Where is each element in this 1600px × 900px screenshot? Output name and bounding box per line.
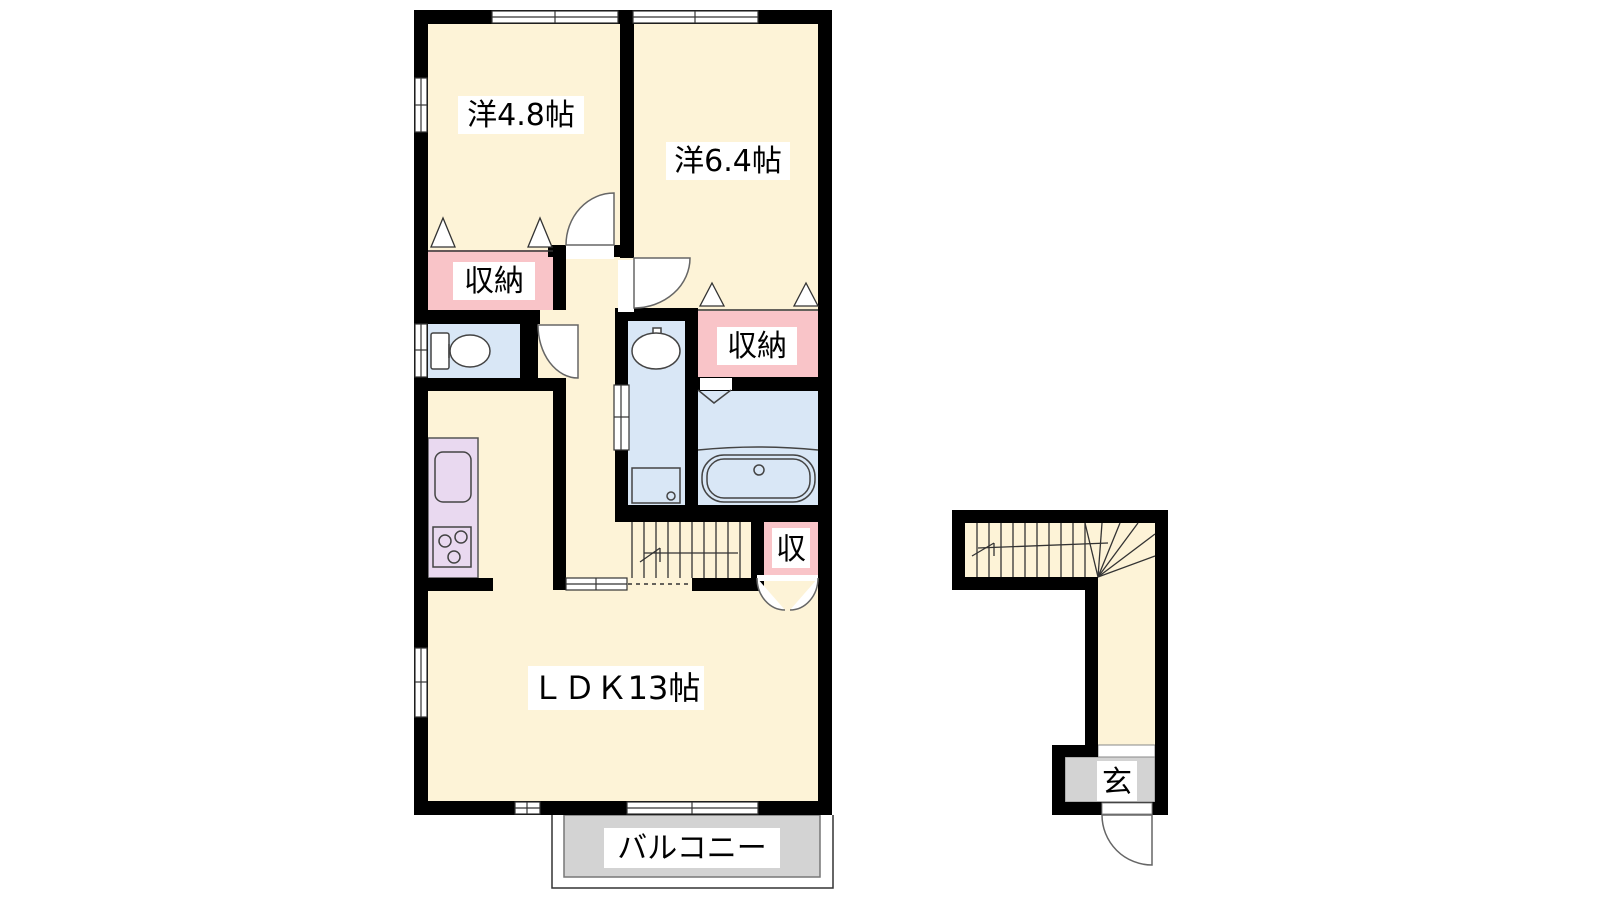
wall-stairs-right — [751, 522, 764, 578]
wall-between-rooms — [620, 24, 634, 258]
door-washroom-sliding — [614, 385, 629, 450]
entrance-threshold — [1098, 745, 1155, 757]
door-room64-gap — [618, 260, 634, 312]
entrance-label: 玄 — [1102, 765, 1132, 800]
corridor-floor — [1098, 577, 1155, 745]
wall-storageleft-right — [553, 245, 566, 310]
wall-below-toilet — [414, 378, 566, 391]
window-top-room48 — [492, 11, 618, 23]
toilet-icon — [431, 333, 490, 369]
wall-entrance-topfill — [1065, 745, 1098, 757]
room48-label: 洋4.8帖 — [467, 98, 575, 133]
balcony-label: バルコニー — [617, 831, 766, 866]
wall-top — [414, 10, 832, 24]
storage-small-label: 収 — [776, 532, 806, 567]
wall-structure-right — [1155, 510, 1168, 815]
wall-below-stairs — [692, 578, 764, 591]
wall-bottom — [414, 801, 832, 815]
wall-washroom-left-upper — [615, 321, 628, 385]
window-left-room48 — [415, 78, 427, 132]
window-left-toilet — [415, 324, 427, 377]
storage-left-label: 収納 — [464, 264, 524, 299]
wall-stairwell-top — [952, 510, 1168, 523]
room64-label: 洋6.4帖 — [674, 144, 782, 179]
wall-corridor-left — [1085, 577, 1098, 745]
window-top-room64 — [633, 11, 758, 23]
wall-above-toilet — [428, 310, 540, 324]
window-left-ldk — [415, 648, 427, 717]
wall-stairwell-bottom — [952, 577, 1098, 590]
floorplan-page: 洋4.8帖 洋6.4帖 収納 収納 収 ＬＤＫ13帖 バルコニー 玄 — [0, 0, 1600, 900]
wall-bath-bottom — [615, 505, 832, 522]
wall-toilet-right — [520, 324, 538, 378]
storage-right-label: 収納 — [727, 329, 787, 364]
wall-right — [818, 10, 832, 815]
floorplan-svg: 洋4.8帖 洋6.4帖 収納 収納 収 ＬＤＫ13帖 バルコニー 玄 — [0, 0, 1600, 900]
wall-washroom-bath-divider — [685, 308, 698, 522]
window-bottom-small — [515, 802, 540, 814]
wall-kitchen-stub — [414, 578, 493, 591]
ldk-label: ＬＤＫ13帖 — [532, 669, 701, 707]
window-balcony-slider — [627, 802, 758, 814]
door-entrance-swing — [1102, 803, 1152, 865]
wall-hall-left — [553, 378, 566, 590]
